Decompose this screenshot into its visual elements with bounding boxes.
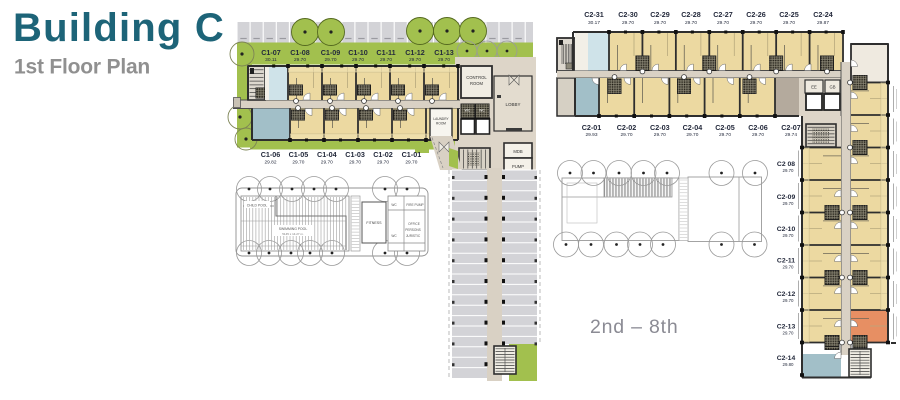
svg-text:C2-09: C2-09 <box>777 194 796 201</box>
svg-text:C2-24: C2-24 <box>813 10 833 19</box>
svg-text:29.70: 29.70 <box>685 20 697 26</box>
svg-text:29.70: 29.70 <box>750 20 762 26</box>
svg-text:29.93: 29.93 <box>585 132 597 138</box>
svg-text:C1-01: C1-01 <box>402 150 422 159</box>
svg-text:C1-12: C1-12 <box>405 48 425 57</box>
svg-text:29.70: 29.70 <box>783 265 795 270</box>
svg-text:FITNESS: FITNESS <box>366 221 382 225</box>
svg-text:ROOM: ROOM <box>470 81 484 86</box>
svg-text:WC: WC <box>465 109 471 113</box>
svg-text:C2-31: C2-31 <box>584 10 604 19</box>
svg-text:C2-27: C2-27 <box>713 10 733 19</box>
svg-text:29.70: 29.70 <box>686 132 698 138</box>
svg-text:C2-02: C2-02 <box>617 123 637 132</box>
svg-text:WC: WC <box>391 203 397 207</box>
svg-text:OFFICE: OFFICE <box>408 222 420 226</box>
svg-text:C2-07: C2-07 <box>781 123 801 132</box>
svg-text:FIRE PUMP: FIRE PUMP <box>406 203 423 207</box>
svg-text:C2-05: C2-05 <box>715 123 735 132</box>
svg-text:29.74: 29.74 <box>785 132 797 138</box>
svg-text:C2-28: C2-28 <box>681 10 701 19</box>
svg-text:C2-25: C2-25 <box>779 10 799 19</box>
svg-text:29.70: 29.70 <box>292 160 304 166</box>
svg-text:29.70: 29.70 <box>783 201 795 206</box>
svg-text:PERSONS: PERSONS <box>405 228 421 232</box>
svg-text:LAUNDRY: LAUNDRY <box>433 117 449 121</box>
svg-text:C2 08: C2 08 <box>777 161 795 168</box>
svg-text:C2-06: C2-06 <box>748 123 768 132</box>
svg-text:29.82: 29.82 <box>264 160 276 166</box>
svg-text:CHILD POOL: CHILD POOL <box>247 204 268 208</box>
svg-text:JURISTIC: JURISTIC <box>406 234 421 238</box>
svg-text:MDB: MDB <box>513 149 523 154</box>
svg-text:29.70: 29.70 <box>783 331 795 336</box>
svg-text:29.70: 29.70 <box>620 132 632 138</box>
svg-text:C2-01: C2-01 <box>582 123 602 132</box>
svg-text:C1-10: C1-10 <box>348 48 368 57</box>
svg-text:C1-04: C1-04 <box>317 150 337 159</box>
svg-text:WC: WC <box>391 234 397 238</box>
svg-text:29.70: 29.70 <box>752 132 764 138</box>
svg-text:29.70: 29.70 <box>409 57 421 63</box>
svg-text:29.70: 29.70 <box>783 20 795 26</box>
svg-text:29.80: 29.80 <box>783 362 795 367</box>
svg-text:C1-06: C1-06 <box>261 150 281 159</box>
svg-text:EE: EE <box>811 85 817 90</box>
svg-text:C2-29: C2-29 <box>650 10 670 19</box>
svg-text:C2-12: C2-12 <box>777 291 796 298</box>
svg-text:C2-03: C2-03 <box>650 123 670 132</box>
svg-text:29.70: 29.70 <box>719 132 731 138</box>
svg-text:5145 x 14.27 m.: 5145 x 14.27 m. <box>282 232 304 236</box>
svg-text:GB: GB <box>829 85 835 90</box>
svg-text:C2-13: C2-13 <box>777 324 796 331</box>
svg-text:30.11: 30.11 <box>265 57 277 63</box>
svg-text:1st Floor Plan: 1st Floor Plan <box>14 56 150 79</box>
svg-text:C2-30: C2-30 <box>618 10 638 19</box>
svg-text:C1-13: C1-13 <box>434 48 454 57</box>
svg-text:C2-14: C2-14 <box>777 355 796 362</box>
svg-text:29.70: 29.70 <box>405 160 417 166</box>
svg-text:2nd – 8th: 2nd – 8th <box>590 316 679 338</box>
svg-text:29.87: 29.87 <box>817 20 829 26</box>
svg-text:LOBBY: LOBBY <box>505 102 520 107</box>
svg-text:29.70: 29.70 <box>321 160 333 166</box>
svg-text:C2-26: C2-26 <box>746 10 766 19</box>
svg-text:29.70: 29.70 <box>783 298 795 303</box>
svg-text:C2-11: C2-11 <box>777 258 795 265</box>
svg-text:30.17: 30.17 <box>588 20 600 26</box>
svg-text:C2-10: C2-10 <box>777 226 796 233</box>
svg-text:WC: WC <box>479 109 485 113</box>
svg-text:SWIMMING POOL: SWIMMING POOL <box>279 227 308 231</box>
svg-text:29.70: 29.70 <box>294 57 306 63</box>
svg-text:CONTROL: CONTROL <box>466 75 487 80</box>
svg-text:29.70: 29.70 <box>380 57 392 63</box>
svg-text:29.70: 29.70 <box>352 57 364 63</box>
svg-text:C1-07: C1-07 <box>261 48 281 57</box>
svg-text:29.70: 29.70 <box>717 20 729 26</box>
svg-text:29.70: 29.70 <box>377 160 389 166</box>
svg-text:29.70: 29.70 <box>783 233 795 238</box>
svg-text:PUMP: PUMP <box>512 164 524 169</box>
svg-text:Building C: Building C <box>13 6 225 50</box>
svg-text:29.70: 29.70 <box>622 20 634 26</box>
svg-text:29.70: 29.70 <box>783 168 795 173</box>
svg-text:29.70: 29.70 <box>654 20 666 26</box>
svg-text:29.70: 29.70 <box>654 132 666 138</box>
svg-text:29.70: 29.70 <box>349 160 361 166</box>
svg-text:29.70: 29.70 <box>324 57 336 63</box>
svg-text:29.70: 29.70 <box>438 57 450 63</box>
svg-text:ROOM: ROOM <box>436 122 446 126</box>
svg-text:C1-05: C1-05 <box>289 150 309 159</box>
svg-text:C1-03: C1-03 <box>345 150 365 159</box>
svg-text:C2-04: C2-04 <box>683 123 703 132</box>
svg-text:C1-08: C1-08 <box>290 48 310 57</box>
svg-text:C1-02: C1-02 <box>373 150 393 159</box>
svg-text:C1-11: C1-11 <box>376 48 395 57</box>
svg-text:C1-09: C1-09 <box>321 48 341 57</box>
